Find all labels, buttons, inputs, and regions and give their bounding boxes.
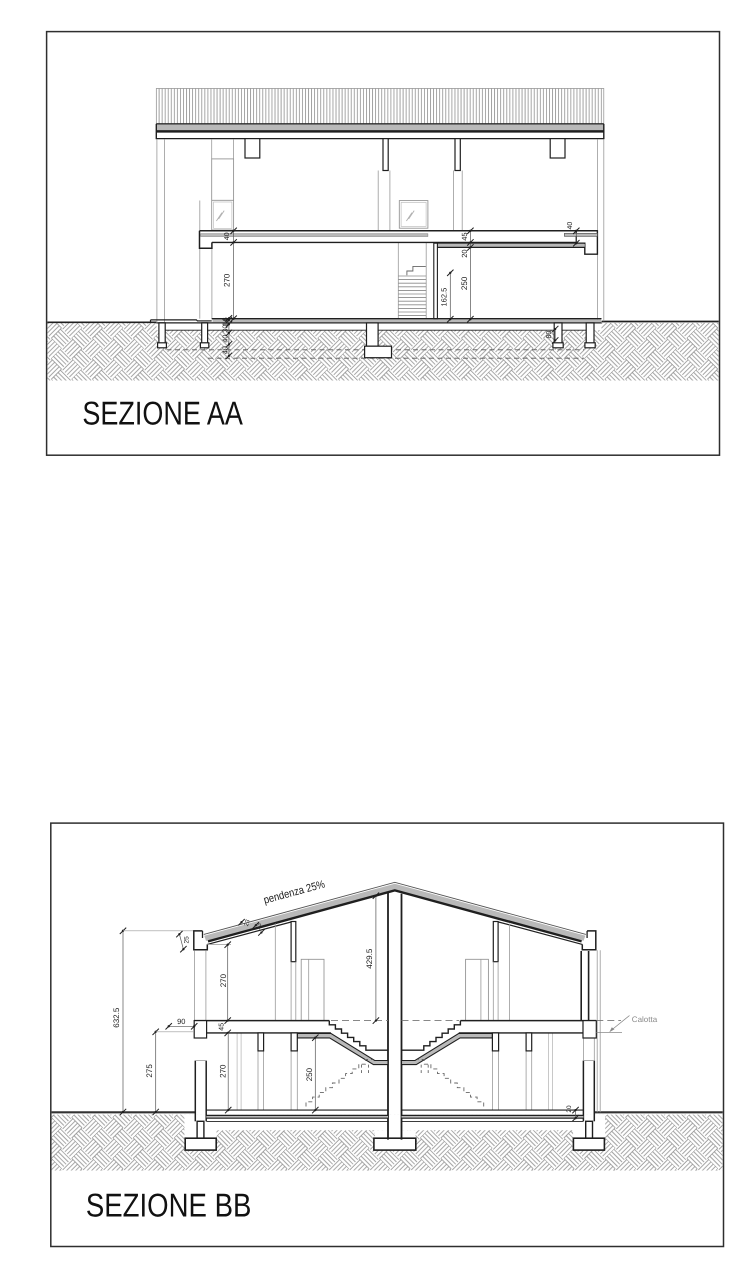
- svg-text:270: 270: [219, 1064, 228, 1078]
- svg-text:429.5: 429.5: [365, 948, 374, 969]
- svg-text:Calotta: Calotta: [632, 1015, 658, 1024]
- svg-text:40: 40: [567, 222, 574, 230]
- svg-text:pendenza 25%: pendenza 25%: [262, 878, 326, 906]
- svg-text:270: 270: [219, 973, 228, 987]
- svg-text:20: 20: [460, 249, 469, 257]
- svg-text:250: 250: [460, 276, 469, 290]
- svg-text:162.5: 162.5: [440, 288, 449, 307]
- svg-text:270: 270: [223, 273, 232, 287]
- svg-text:90: 90: [177, 1017, 185, 1026]
- svg-text:25: 25: [184, 936, 191, 944]
- svg-text:20: 20: [566, 1105, 573, 1113]
- svg-text:80: 80: [546, 331, 553, 339]
- svg-text:250: 250: [305, 1067, 314, 1081]
- svg-text:45: 45: [219, 1023, 226, 1031]
- svg-text:40: 40: [224, 232, 231, 240]
- svg-text:30: 30: [221, 325, 230, 333]
- svg-text:SEZIONE BB: SEZIONE BB: [86, 1186, 252, 1223]
- svg-text:40: 40: [221, 335, 230, 343]
- svg-text:632.5: 632.5: [112, 1007, 121, 1028]
- svg-text:45: 45: [460, 232, 469, 240]
- svg-text:275: 275: [145, 1064, 154, 1078]
- svg-text:SEZIONE AA: SEZIONE AA: [82, 395, 243, 432]
- svg-text:40: 40: [221, 346, 230, 354]
